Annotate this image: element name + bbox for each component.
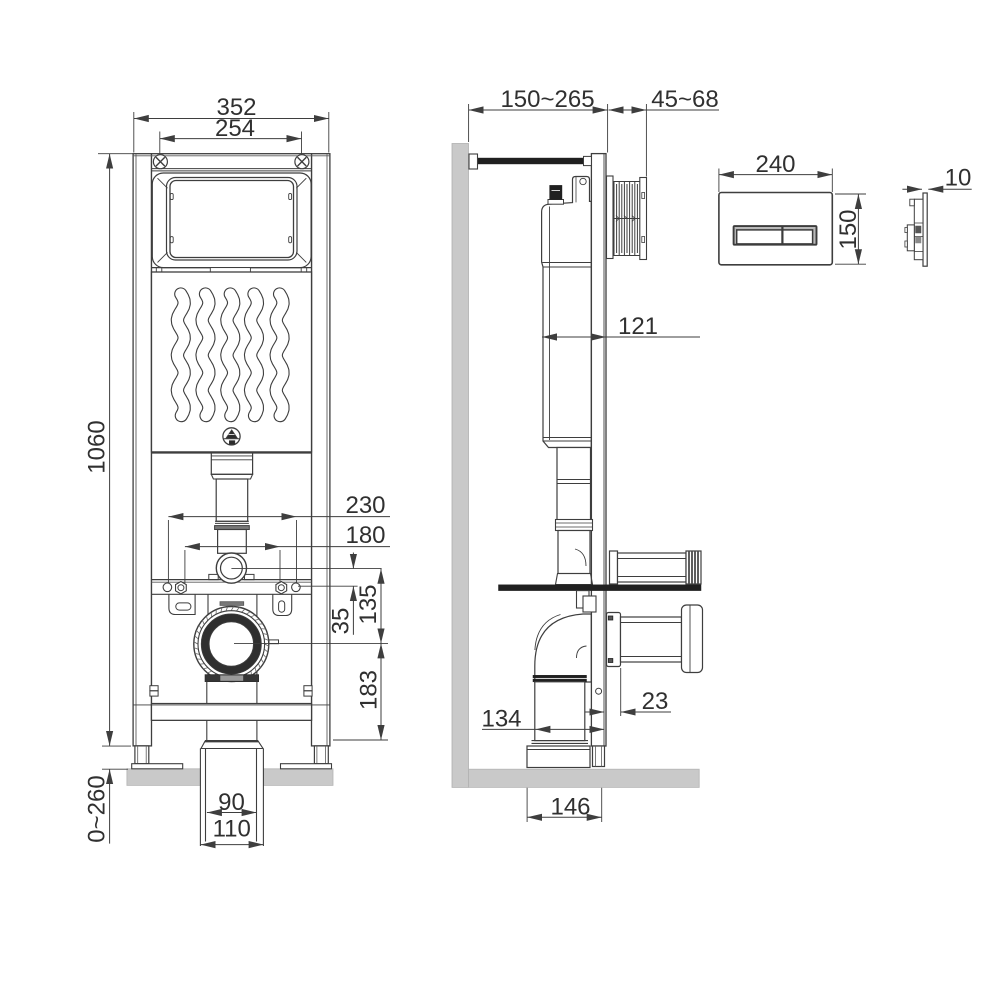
svg-text:110: 110: [213, 816, 251, 843]
svg-text:121: 121: [618, 313, 658, 340]
svg-text:146: 146: [550, 794, 590, 821]
svg-text:10: 10: [945, 165, 972, 192]
svg-text:150~265: 150~265: [500, 86, 594, 113]
svg-text:150: 150: [835, 209, 862, 249]
svg-text:254: 254: [215, 115, 255, 142]
svg-text:135: 135: [355, 584, 382, 624]
svg-text:240: 240: [755, 151, 795, 178]
svg-text:45~68: 45~68: [651, 86, 718, 113]
svg-text:183: 183: [356, 670, 383, 710]
svg-text:90: 90: [218, 789, 245, 816]
svg-text:23: 23: [642, 688, 669, 715]
svg-text:134: 134: [481, 706, 521, 733]
svg-text:0~260: 0~260: [84, 775, 111, 842]
svg-text:180: 180: [345, 522, 385, 549]
svg-text:230: 230: [345, 492, 385, 519]
svg-text:35: 35: [328, 608, 355, 635]
svg-text:1060: 1060: [84, 420, 111, 473]
